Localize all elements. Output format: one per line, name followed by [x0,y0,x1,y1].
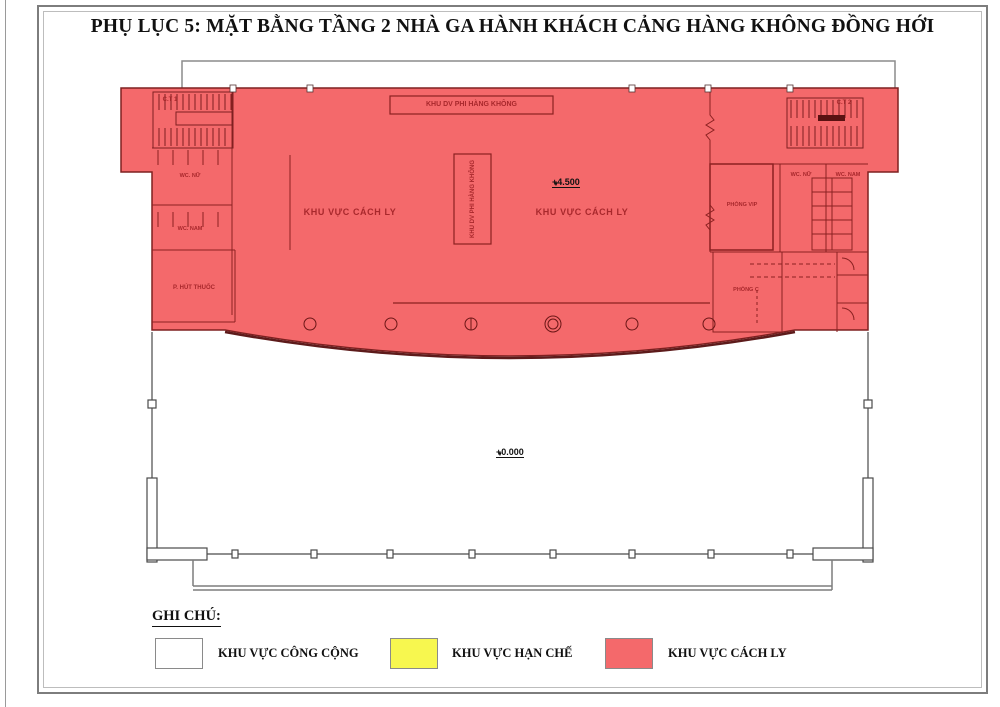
legend-swatch-restricted [390,638,438,669]
level-marker-ground: ▼ +0.000 [496,447,524,457]
room-label-stair-1: C.T 1 [150,97,190,104]
legend-label-public: KHU VỰC CÔNG CỘNG [218,646,359,661]
room-label-nonav-service-center: KHU DV PHI HÀNG KHÔNG [454,154,491,244]
isolation-area-shape [121,88,898,358]
roof-canopy-outline [182,61,895,88]
level-marker-upper: ▼ +4.500 [552,177,580,187]
room-label-vip: PHÒNG VIP [712,202,772,208]
area-label-isolation-right: KHU VỰC CÁCH LY [522,208,642,218]
area-label-isolation-left: KHU VỰC CÁCH LY [290,208,410,218]
curbside-canopy-lines [193,560,832,590]
room-label-nonav-service-top: KHU DV PHI HÀNG KHÔNG [390,101,553,109]
room-label-wc-female-right: WC. NỮ [780,172,822,178]
legend-label-isolation: KHU VỰC CÁCH LY [668,646,787,661]
room-label-wc-male-right: WC. NAM [827,172,869,178]
legend-swatch-isolation [605,638,653,669]
drawing-page: PHỤ LỤC 5: MẶT BẰNG TẦNG 2 NHÀ GA HÀNH K… [0,0,1000,707]
level-triangle-icon: ▼ [553,182,559,188]
room-label-stair-2: C.T 2 [824,100,864,107]
legend-title: GHI CHÚ: [152,608,221,627]
room-label-room-c: PHÒNG C [718,287,774,293]
room-label-wc-female-left: WC. NỮ [168,173,212,179]
legend-label-restricted: KHU VỰC HẠN CHẾ [452,646,573,661]
room-label-wc-male-left: WC. NAM [168,226,212,232]
legend-swatch-public [155,638,203,669]
room-label-smoking: P. HÚT THUỐC [164,285,224,292]
level-triangle-icon: ▼ [497,452,503,458]
